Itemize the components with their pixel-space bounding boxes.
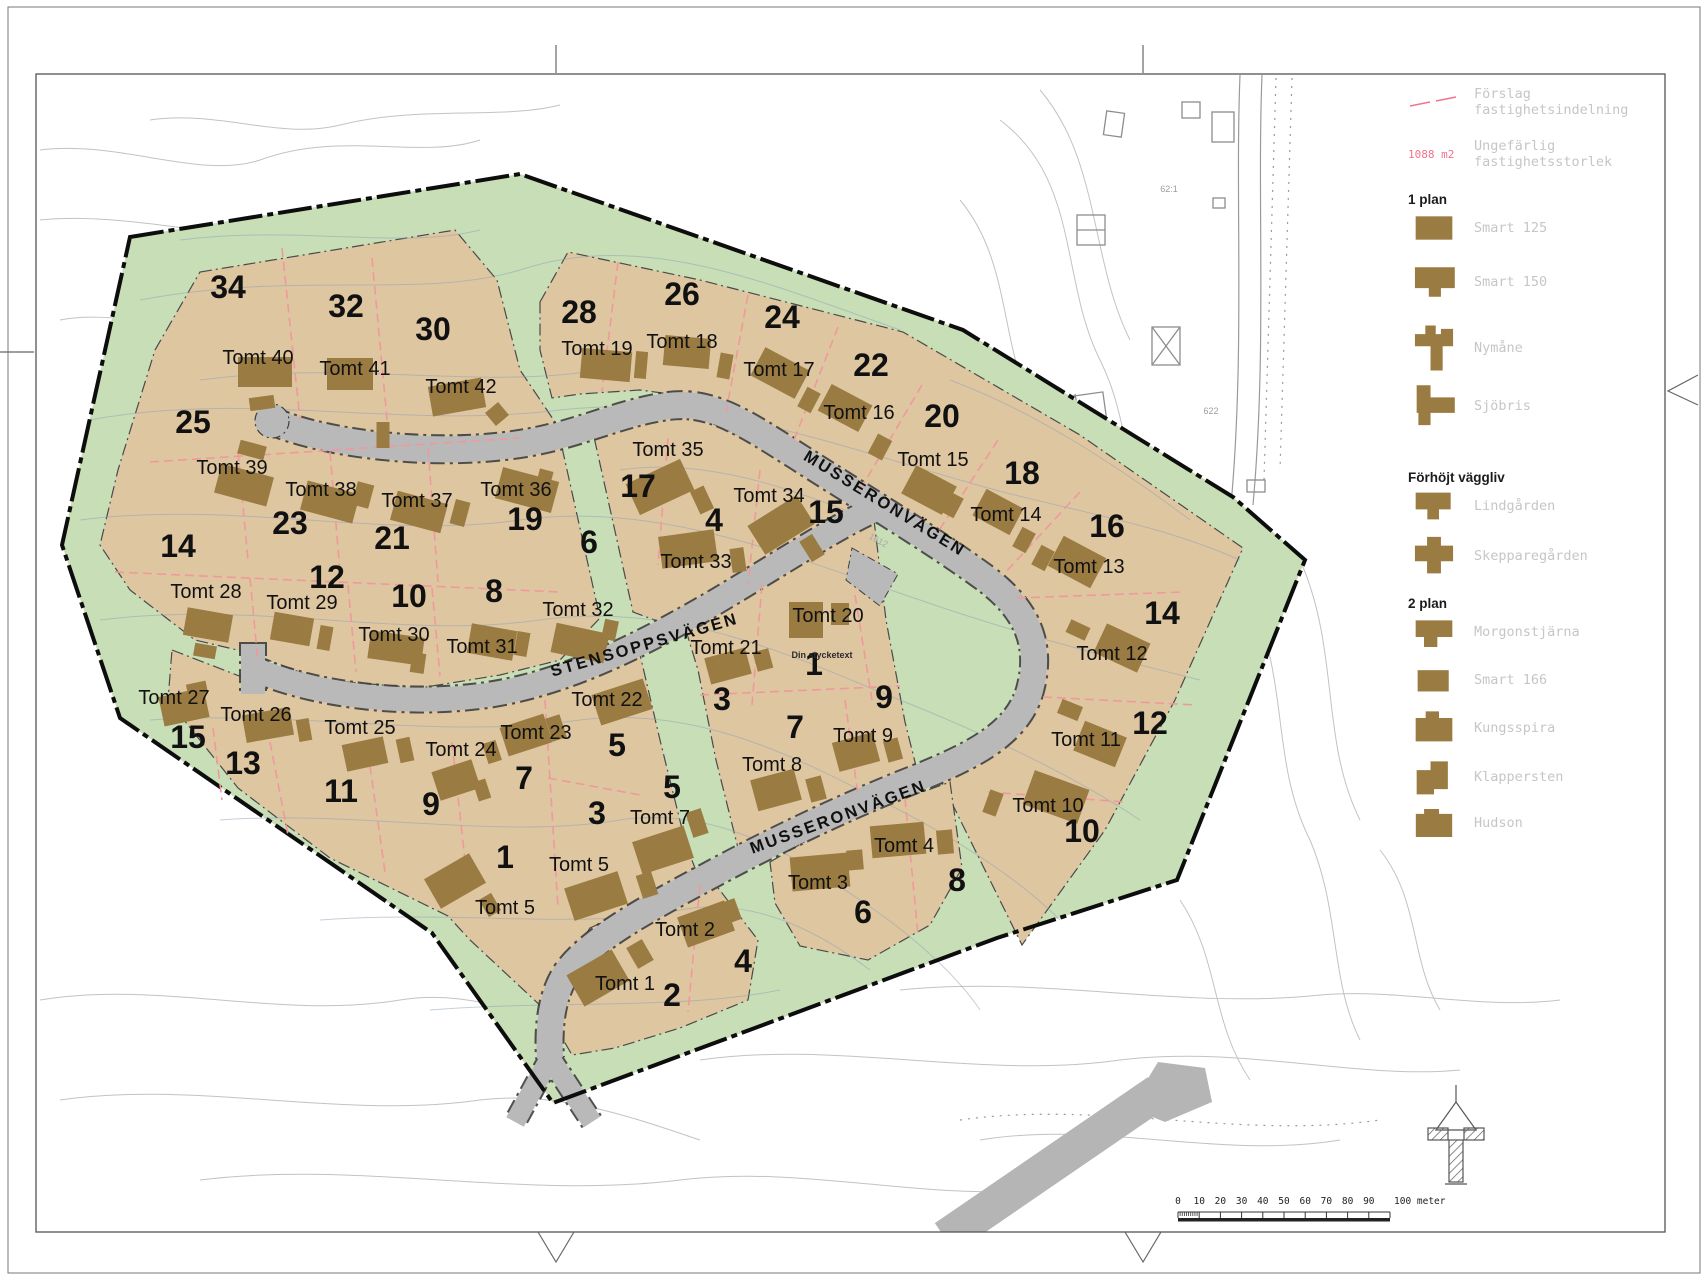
north-arrow-icon — [1428, 1085, 1484, 1184]
legend-item-proposal-line: Förslag fastighetsindelning — [1408, 86, 1628, 118]
plot-number-label: 32 — [328, 288, 364, 324]
legend-section-1plan: 1 plan — [1408, 192, 1447, 207]
hudson-icon — [1408, 804, 1460, 842]
nymane-icon — [1408, 318, 1460, 378]
tomt-label: Tomt 2 — [655, 919, 715, 941]
plot-number-label: 7 — [786, 709, 804, 745]
tomt-label: Tomt 39 — [196, 457, 267, 479]
tomt-label: Tomt 18 — [646, 331, 717, 353]
plot-number-label: 18 — [1004, 455, 1040, 491]
area-size-sample: 1088 m2 — [1408, 148, 1460, 161]
plot-number-label: 20 — [924, 398, 960, 434]
legend-item-morgonstjarna: Morgonstjärna — [1408, 612, 1580, 652]
sjobris-icon — [1408, 380, 1460, 432]
tomt-label: Tomt 27 — [138, 687, 209, 709]
legend-label: Hudson — [1474, 815, 1523, 831]
tomt-label: Tomt 5 — [475, 897, 535, 919]
scale-tick-label: 10 — [1193, 1196, 1205, 1207]
plot-number-label: 28 — [561, 294, 597, 330]
tomt-label: Tomt 23 — [500, 722, 571, 744]
tomt-label: Tomt 24 — [425, 739, 496, 761]
klappersten-icon — [1408, 756, 1460, 798]
plot-number-label: 3 — [588, 795, 606, 831]
tomt-label: Tomt 14 — [970, 504, 1041, 526]
tomt-label: Tomt 7 — [630, 807, 690, 829]
legend-proposal-label: Förslag fastighetsindelning — [1474, 86, 1628, 118]
tomt-label: Tomt 42 — [425, 376, 496, 398]
tomt-label: Tomt 9 — [833, 725, 893, 747]
tomt-label: Tomt 38 — [285, 479, 356, 501]
plot-number-label: 12 — [309, 559, 345, 595]
tomt-label: Tomt 28 — [170, 581, 241, 603]
tomt-label: Tomt 8 — [742, 754, 802, 776]
plot-number-label: 1 — [496, 839, 514, 875]
legend-area-size-label: Ungefärlig fastighetsstorlek — [1474, 138, 1612, 170]
plot-number-label: 30 — [415, 311, 451, 347]
legend-item-sjobris: Sjöbris — [1408, 380, 1531, 432]
tomt-label: Tomt 11 — [1051, 729, 1121, 751]
scale-tick-label: 80 — [1342, 1196, 1354, 1207]
legend-item-klappersten: Klappersten — [1408, 756, 1563, 798]
plot-number-label: 24 — [764, 299, 800, 335]
legend-item-smart-166: Smart 166 — [1408, 662, 1547, 698]
tomt-label: Tomt 22 — [571, 689, 642, 711]
tomt-label: Tomt 17 — [743, 359, 814, 381]
map-annotation: 62:1 — [1160, 184, 1178, 194]
legend-label: Kungsspira — [1474, 720, 1555, 736]
map-annotation: Din stycketext — [791, 650, 852, 660]
legend-label: Smart 125 — [1474, 220, 1547, 236]
scale-bar-band — [1178, 1218, 1390, 1222]
plot-number-label: 12 — [1132, 705, 1168, 741]
legend-section-2plan: 2 plan — [1408, 596, 1447, 611]
tomt-label: Tomt 15 — [897, 449, 968, 471]
tomt-label: Tomt 25 — [324, 717, 395, 739]
scale-tick-label: 70 — [1321, 1196, 1333, 1207]
tomt-label: Tomt 36 — [480, 479, 551, 501]
existing-road-band — [945, 1062, 1212, 1238]
legend-section-forhojt-vaggliv: Förhöjt väggliv — [1408, 470, 1505, 485]
smart-125-icon — [1408, 208, 1460, 248]
tomt-label: Tomt 41 — [319, 358, 390, 380]
plot-number-label: 7 — [515, 760, 533, 796]
scale-tick-label: 30 — [1236, 1196, 1248, 1207]
scale-tick-label: 90 — [1363, 1196, 1375, 1207]
tomt-label: Tomt 21 — [690, 637, 761, 659]
tomt-label: Tomt 31 — [446, 636, 517, 658]
tomt-label: Tomt 19 — [561, 338, 632, 360]
legend-label: Sjöbris — [1474, 398, 1531, 414]
tomt-label: Tomt 40 — [222, 347, 293, 369]
legend-item-skepparegarden: Skepparegården — [1408, 532, 1588, 580]
legend-label: Smart 166 — [1474, 672, 1547, 688]
scale-tick-label: 0 — [1175, 1196, 1181, 1207]
house-footprint — [846, 849, 864, 870]
plot-number-label: 5 — [663, 769, 681, 805]
skepparegarden-icon — [1408, 532, 1460, 580]
plot-number-label: 2 — [663, 977, 681, 1013]
plot-number-label: 6 — [854, 894, 872, 930]
plot-number-label: 26 — [664, 276, 700, 312]
house-footprint — [410, 652, 427, 674]
plot-number-label: 11 — [324, 773, 358, 809]
plot-number-label: 15 — [808, 494, 844, 530]
plot-number-label: 22 — [853, 347, 889, 383]
legend-item-area-size: 1088 m2 Ungefärlig fastighetsstorlek — [1408, 138, 1612, 170]
plot-number-label: 5 — [608, 727, 626, 763]
legend-item-smart-125: Smart 125 — [1408, 208, 1547, 248]
lindgarden-icon — [1408, 486, 1460, 526]
plot-number-label: 4 — [734, 943, 752, 979]
legend-label: Klappersten — [1474, 769, 1563, 785]
map-annotation: 622 — [1203, 406, 1218, 416]
tomt-label: Tomt 37 — [381, 490, 452, 512]
tomt-label: Tomt 1 — [595, 973, 655, 995]
plot-number-label: 25 — [175, 404, 211, 440]
scale-bar: 0102030405060708090100 meter — [1175, 1196, 1446, 1222]
scale-end-label: 100 meter — [1394, 1196, 1446, 1207]
plot-number-label: 4 — [705, 502, 723, 538]
tomt-label: Tomt 35 — [632, 439, 703, 461]
legend-label: Morgonstjärna — [1474, 624, 1580, 640]
legend-item-lindgarden: Lindgården — [1408, 486, 1555, 526]
tomt-label: Tomt 13 — [1053, 556, 1124, 578]
tomt-label: Tomt 29 — [266, 592, 337, 614]
plot-number-label: 14 — [1144, 595, 1180, 631]
tomt-label: Tomt 34 — [733, 485, 804, 507]
tomt-label: Tomt 3 — [788, 872, 848, 894]
tomt-label: Tomt 16 — [823, 402, 894, 424]
plot-number-label: 10 — [391, 578, 427, 614]
smart-166-icon — [1408, 662, 1460, 698]
plot-number-label: 8 — [485, 573, 503, 609]
plot-number-label: 9 — [422, 786, 440, 822]
plot-number-label: 6 — [580, 524, 598, 560]
scale-tick-label: 60 — [1299, 1196, 1311, 1207]
plot-number-label: 8 — [948, 862, 966, 898]
plot-number-label: 14 — [160, 528, 196, 564]
scale-tick-label: 40 — [1257, 1196, 1269, 1207]
tomt-label: Tomt 30 — [358, 624, 429, 646]
legend-item-smart-150: Smart 150 — [1408, 260, 1547, 304]
plot-number-label: 21 — [374, 520, 410, 556]
tomt-label: Tomt 32 — [542, 599, 613, 621]
tomt-label: Tomt 33 — [660, 551, 731, 573]
plot-number-label: 10 — [1064, 813, 1100, 849]
tomt-label: Tomt 4 — [874, 835, 934, 857]
plot-number-label: 3 — [713, 681, 731, 717]
legend-item-kungsspira: Kungsspira — [1408, 708, 1555, 748]
kungsspira-icon — [1408, 708, 1460, 748]
house-footprint — [634, 351, 648, 379]
legend-item-nymane: Nymåne — [1408, 318, 1523, 378]
tomt-label: Tomt 20 — [792, 605, 863, 627]
scale-tick-label: 50 — [1278, 1196, 1290, 1207]
scale-tick-label: 20 — [1215, 1196, 1227, 1207]
plot-number-label: 15 — [170, 719, 206, 755]
tomt-label: Tomt 5 — [549, 854, 609, 876]
plot-number-label: 16 — [1089, 508, 1125, 544]
house-footprint — [936, 829, 954, 854]
morgonstjarna-icon — [1408, 612, 1460, 652]
legend-label: Lindgården — [1474, 498, 1555, 514]
legend-item-hudson: Hudson — [1408, 804, 1523, 842]
plot-number-label: 13 — [225, 745, 261, 781]
legend-label: Smart 150 — [1474, 274, 1547, 290]
tomt-label: Tomt 26 — [220, 704, 291, 726]
legend-label: Nymåne — [1474, 340, 1523, 356]
plot-number-label: 19 — [507, 501, 543, 537]
plan-sheet: Tomt 40Tomt 41Tomt 42Tomt 39Tomt 38Tomt … — [0, 0, 1707, 1280]
tomt-label: Tomt 12 — [1076, 643, 1147, 665]
legend-label: Skepparegården — [1474, 548, 1588, 564]
plot-number-label: 9 — [875, 679, 893, 715]
plot-number-label: 17 — [620, 468, 656, 504]
dashed-line-icon — [1408, 92, 1460, 112]
plot-number-label: 34 — [210, 269, 246, 305]
smart-150-icon — [1408, 260, 1460, 304]
plot-number-label: 23 — [272, 505, 308, 541]
house-footprint — [377, 422, 390, 448]
